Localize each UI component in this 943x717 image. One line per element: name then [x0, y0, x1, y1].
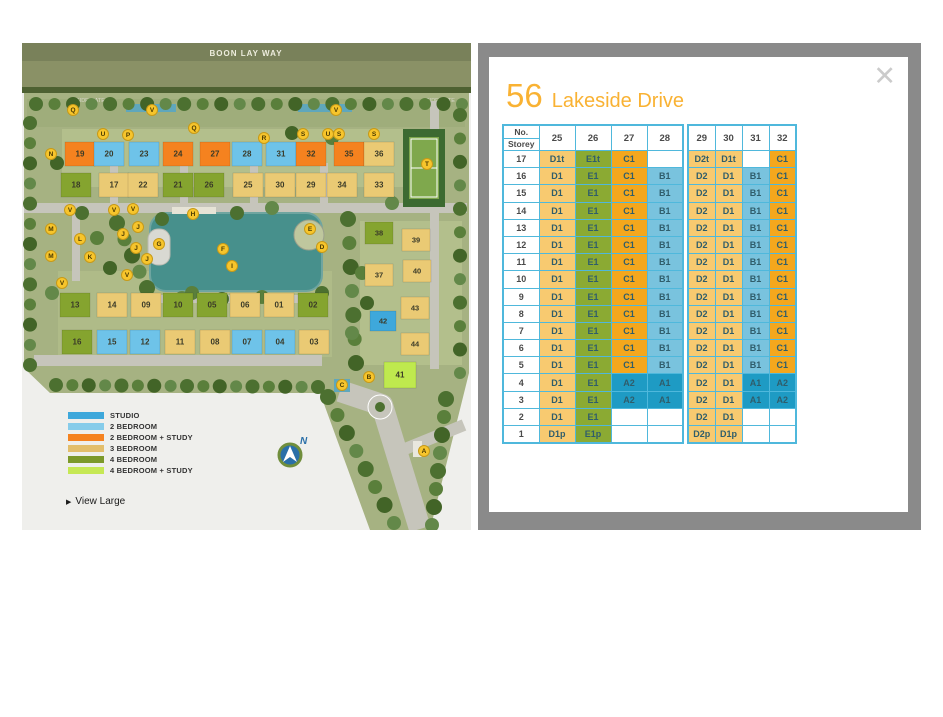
- marker-N: N: [46, 149, 57, 160]
- unit-cell-28-10[interactable]: B1: [647, 271, 683, 288]
- unit-cell-25-7[interactable]: D1: [539, 322, 575, 339]
- building-36[interactable]: 36: [364, 142, 394, 166]
- unit-cell-32-6[interactable]: C1: [769, 340, 796, 357]
- unit-cell-29-2[interactable]: D2: [688, 408, 715, 425]
- tree: [387, 516, 401, 530]
- unit-cell-26-5[interactable]: E1: [575, 357, 611, 374]
- tree: [115, 379, 129, 393]
- marker-V-letter: V: [125, 272, 130, 279]
- building-32[interactable]: 32: [296, 142, 326, 166]
- unit-cell-28-3[interactable]: A1: [647, 391, 683, 408]
- unit-cell-30-1[interactable]: D1p: [715, 426, 742, 444]
- unit-cell-32-11[interactable]: C1: [769, 254, 796, 271]
- tree: [23, 358, 37, 372]
- unit-cell-25-16[interactable]: D1: [539, 168, 575, 185]
- storey-label: 13: [503, 219, 539, 236]
- unit-cell-29-6[interactable]: D2: [688, 340, 715, 357]
- unit-cell-31-12[interactable]: B1: [742, 236, 769, 253]
- unit-cell-32-7[interactable]: C1: [769, 322, 796, 339]
- unit-cell-29-1[interactable]: D2p: [688, 426, 715, 444]
- unit-cell-27-7[interactable]: C1: [611, 322, 647, 339]
- unit-cell-32-14[interactable]: C1: [769, 202, 796, 219]
- unit-cell-26-6[interactable]: E1: [575, 340, 611, 357]
- unit-cell-26-13[interactable]: E1: [575, 219, 611, 236]
- marker-V: V: [128, 204, 139, 215]
- unit-cell-27-13[interactable]: C1: [611, 219, 647, 236]
- storey-label: 10: [503, 271, 539, 288]
- unit-cell-30-11[interactable]: D1: [715, 254, 742, 271]
- unit-cell-28-14[interactable]: B1: [647, 202, 683, 219]
- unit-cell-29-13[interactable]: D2: [688, 219, 715, 236]
- building-12[interactable]: 12: [130, 330, 160, 354]
- legend-label: 2 BEDROOM + STUDY: [110, 433, 193, 442]
- unit-cell-27-4[interactable]: A2: [611, 374, 647, 391]
- unit-cell-27-9[interactable]: C1: [611, 288, 647, 305]
- unit-cell-30-15[interactable]: D1: [715, 185, 742, 202]
- unit-cell-26-3[interactable]: E1: [575, 391, 611, 408]
- unit-cell-31-5[interactable]: B1: [742, 357, 769, 374]
- unit-cell-28-9[interactable]: B1: [647, 288, 683, 305]
- tree: [180, 379, 194, 393]
- tree: [29, 97, 43, 111]
- building-04[interactable]: 04: [265, 330, 295, 354]
- unit-cell-27-12[interactable]: C1: [611, 236, 647, 253]
- storey-row-9: D2D1B1C1: [688, 288, 796, 305]
- marker-A-letter: A: [422, 448, 427, 455]
- unit-cell-26-8[interactable]: E1: [575, 305, 611, 322]
- unit-cell-30-4[interactable]: D1: [715, 374, 742, 391]
- legend-label: 4 BEDROOM + STUDY: [110, 466, 193, 475]
- unit-cell-30-17[interactable]: D1t: [715, 151, 742, 168]
- storey-row-8: D2D1B1C1: [688, 305, 796, 322]
- storey-row-11: D2D1B1C1: [688, 254, 796, 271]
- unit-cell-25-11[interactable]: D1: [539, 254, 575, 271]
- building-15-number: 15: [108, 338, 117, 347]
- empty-cell: [647, 426, 683, 444]
- tree: [155, 212, 169, 226]
- column-header-26: 26: [575, 125, 611, 151]
- unit-cell-32-4[interactable]: A2: [769, 374, 796, 391]
- legend-item-3: 2 BEDROOM + STUDY: [68, 432, 193, 443]
- tree: [342, 236, 356, 250]
- marker-S-letter: S: [337, 131, 342, 138]
- tree: [133, 265, 147, 279]
- marker-P: P: [123, 130, 134, 141]
- unit-cell-25-14[interactable]: D1: [539, 202, 575, 219]
- building-34[interactable]: 34: [327, 173, 357, 197]
- unit-cell-29-12[interactable]: D2: [688, 236, 715, 253]
- building-20[interactable]: 20: [94, 142, 124, 166]
- unit-cell-27-6[interactable]: C1: [611, 340, 647, 357]
- tree: [437, 410, 451, 424]
- tree: [132, 380, 144, 392]
- building-11[interactable]: 11: [165, 330, 195, 354]
- unit-cell-31-3[interactable]: A1: [742, 391, 769, 408]
- unit-cell-26-4[interactable]: E1: [575, 374, 611, 391]
- tree: [75, 206, 89, 220]
- building-40[interactable]: 40: [403, 260, 431, 282]
- marker-S: S: [298, 129, 309, 140]
- building-18[interactable]: 18: [61, 173, 91, 197]
- building-07[interactable]: 07: [232, 330, 262, 354]
- tree: [377, 497, 393, 513]
- legend-label: 3 BEDROOM: [110, 444, 157, 453]
- unit-cell-31-9[interactable]: B1: [742, 288, 769, 305]
- storey-label: 1: [503, 426, 539, 444]
- building-08[interactable]: 08: [200, 330, 230, 354]
- unit-cell-30-13[interactable]: D1: [715, 219, 742, 236]
- unit-cell-25-15[interactable]: D1: [539, 185, 575, 202]
- building-31-number: 31: [277, 150, 286, 159]
- tree: [197, 380, 209, 392]
- tree: [453, 343, 467, 357]
- unit-cell-31-4[interactable]: A1: [742, 374, 769, 391]
- unit-cell-27-15[interactable]: C1: [611, 185, 647, 202]
- building-25[interactable]: 25: [233, 173, 263, 197]
- building-23[interactable]: 23: [129, 142, 159, 166]
- unit-cell-31-16[interactable]: B1: [742, 168, 769, 185]
- unit-cell-27-10[interactable]: C1: [611, 271, 647, 288]
- unit-cell-26-12[interactable]: E1: [575, 236, 611, 253]
- marker-L: L: [75, 234, 86, 245]
- storey-row-2: 2D1E1: [503, 408, 683, 425]
- unit-cell-28-12[interactable]: B1: [647, 236, 683, 253]
- marker-M-letter: M: [48, 253, 53, 260]
- tree: [340, 211, 356, 227]
- tree: [433, 446, 447, 460]
- unit-cell-26-16[interactable]: E1: [575, 168, 611, 185]
- tree: [160, 98, 172, 110]
- marker-V: V: [109, 205, 120, 216]
- unit-cell-30-9[interactable]: D1: [715, 288, 742, 305]
- unit-cell-29-14[interactable]: D2: [688, 202, 715, 219]
- unit-cell-31-8[interactable]: B1: [742, 305, 769, 322]
- legend-swatch: [68, 467, 104, 475]
- unit-cell-31-13[interactable]: B1: [742, 219, 769, 236]
- building-38[interactable]: 38: [365, 222, 393, 244]
- unit-cell-29-11[interactable]: D2: [688, 254, 715, 271]
- unit-cell-28-13[interactable]: B1: [647, 219, 683, 236]
- building-44-number: 44: [411, 340, 420, 349]
- building-41[interactable]: 41: [384, 362, 416, 388]
- tree: [246, 380, 260, 394]
- marker-M-letter: M: [48, 226, 53, 233]
- unit-cell-32-17[interactable]: C1: [769, 151, 796, 168]
- unit-cell-26-7[interactable]: E1: [575, 322, 611, 339]
- unit-cell-29-10[interactable]: D2: [688, 271, 715, 288]
- tree: [278, 380, 292, 394]
- unit-cell-30-14[interactable]: D1: [715, 202, 742, 219]
- building-31[interactable]: 31: [266, 142, 296, 166]
- unit-cell-27-14[interactable]: C1: [611, 202, 647, 219]
- unit-cell-32-13[interactable]: C1: [769, 219, 796, 236]
- tree: [234, 98, 246, 110]
- column-header-25: 25: [539, 125, 575, 151]
- unit-cell-25-1[interactable]: D1p: [539, 426, 575, 444]
- stack-table-2: 29303132D2tD1tC1D2D1B1C1D2D1B1C1D2D1B1C1…: [687, 124, 797, 444]
- building-37[interactable]: 37: [365, 264, 393, 286]
- marker-U: U: [98, 129, 109, 140]
- empty-cell: [742, 151, 769, 168]
- tree: [123, 98, 135, 110]
- street-name: Lakeside Drive: [552, 90, 684, 113]
- empty-cell: [742, 408, 769, 425]
- tree: [45, 286, 59, 300]
- marker-G-letter: G: [156, 241, 161, 248]
- building-42[interactable]: 42: [370, 311, 396, 331]
- tree: [147, 379, 161, 393]
- tree: [345, 326, 359, 340]
- marker-U: U: [323, 129, 334, 140]
- unit-cell-29-15[interactable]: D2: [688, 185, 715, 202]
- legend-item-6: 4 BEDROOM + STUDY: [68, 465, 193, 476]
- marker-D-letter: D: [320, 244, 325, 251]
- storey-label: 16: [503, 168, 539, 185]
- building-26[interactable]: 26: [194, 173, 224, 197]
- unit-cell-29-16[interactable]: D2: [688, 168, 715, 185]
- unit-cell-32-9[interactable]: C1: [769, 288, 796, 305]
- unit-cell-29-5[interactable]: D2: [688, 357, 715, 374]
- building-06[interactable]: 06: [230, 293, 260, 317]
- building-44[interactable]: 44: [401, 333, 429, 355]
- building-33[interactable]: 33: [364, 173, 394, 197]
- marker-V: V: [122, 270, 133, 281]
- unit-cell-30-6[interactable]: D1: [715, 340, 742, 357]
- building-06-number: 06: [241, 301, 250, 310]
- unit-cell-27-3[interactable]: A2: [611, 391, 647, 408]
- building-05[interactable]: 05: [197, 293, 227, 317]
- building-39[interactable]: 39: [402, 229, 430, 251]
- block-number: 56: [506, 77, 543, 115]
- tree: [358, 461, 374, 477]
- building-09[interactable]: 09: [131, 293, 161, 317]
- legend-swatch: [68, 412, 104, 420]
- unit-cell-28-15[interactable]: B1: [647, 185, 683, 202]
- storey-row-14: 14D1E1C1B1: [503, 202, 683, 219]
- tree: [345, 307, 361, 323]
- unit-cell-32-3[interactable]: A2: [769, 391, 796, 408]
- storey-label: 14: [503, 202, 539, 219]
- building-19-number: 19: [76, 150, 85, 159]
- storey-row-11: 11D1E1C1B1: [503, 254, 683, 271]
- building-03-number: 03: [310, 338, 319, 347]
- unit-cell-31-14[interactable]: B1: [742, 202, 769, 219]
- unit-cell-25-3[interactable]: D1: [539, 391, 575, 408]
- view-large-label: View Large: [75, 496, 125, 507]
- marker-P-letter: P: [126, 132, 131, 139]
- building-43[interactable]: 43: [401, 297, 429, 319]
- building-43-number: 43: [411, 304, 419, 313]
- unit-cell-31-6[interactable]: B1: [742, 340, 769, 357]
- tree: [285, 126, 299, 140]
- building-10-number: 10: [174, 301, 183, 310]
- unit-cell-30-12[interactable]: D1: [715, 236, 742, 253]
- building-14-number: 14: [108, 301, 117, 310]
- building-24[interactable]: 24: [163, 142, 193, 166]
- building-36-number: 36: [375, 150, 384, 159]
- storey-label: 5: [503, 357, 539, 374]
- unit-cell-25-9[interactable]: D1: [539, 288, 575, 305]
- unit-type-legend: STUDIO2 BEDROOM2 BEDROOM + STUDY3 BEDROO…: [68, 410, 193, 476]
- building-14[interactable]: 14: [97, 293, 127, 317]
- tree: [86, 98, 98, 110]
- unit-cell-25-10[interactable]: D1: [539, 271, 575, 288]
- building-35[interactable]: 35: [334, 142, 364, 166]
- building-27[interactable]: 27: [200, 142, 230, 166]
- unit-cell-30-16[interactable]: D1: [715, 168, 742, 185]
- building-16[interactable]: 16: [62, 330, 92, 354]
- unit-cell-25-2[interactable]: D1: [539, 408, 575, 425]
- unit-cell-25-6[interactable]: D1: [539, 340, 575, 357]
- column-header-29: 29: [688, 125, 715, 151]
- unit-cell-30-7[interactable]: D1: [715, 322, 742, 339]
- unit-cell-25-4[interactable]: D1: [539, 374, 575, 391]
- unit-stack-panel: ✕ 56 Lakeside Drive No.Storey2526272817D…: [478, 43, 921, 530]
- legend-item-5: 4 BEDROOM: [68, 454, 193, 465]
- building-03[interactable]: 03: [299, 330, 329, 354]
- unit-cell-31-10[interactable]: B1: [742, 271, 769, 288]
- building-40-number: 40: [413, 267, 421, 276]
- tree: [429, 482, 443, 496]
- tree: [24, 339, 36, 351]
- building-15[interactable]: 15: [97, 330, 127, 354]
- unit-cell-25-13[interactable]: D1: [539, 219, 575, 236]
- marker-S: S: [334, 129, 345, 140]
- marker-F: F: [218, 244, 229, 255]
- storey-row-4: 4D1E1A2A1: [503, 374, 683, 391]
- tree: [453, 155, 467, 169]
- unit-cell-28-16[interactable]: B1: [647, 168, 683, 185]
- unit-cell-32-5[interactable]: C1: [769, 357, 796, 374]
- unit-cell-26-11[interactable]: E1: [575, 254, 611, 271]
- unit-cell-25-12[interactable]: D1: [539, 236, 575, 253]
- building-17[interactable]: 17: [99, 173, 129, 197]
- tree: [308, 98, 320, 110]
- hedge: [22, 87, 471, 93]
- unit-cell-31-7[interactable]: B1: [742, 322, 769, 339]
- unit-cell-26-10[interactable]: E1: [575, 271, 611, 288]
- building-22[interactable]: 22: [128, 173, 158, 197]
- tree: [23, 277, 37, 291]
- unit-cell-29-8[interactable]: D2: [688, 305, 715, 322]
- unit-cell-31-15[interactable]: B1: [742, 185, 769, 202]
- column-header-32: 32: [769, 125, 796, 151]
- unit-cell-28-5[interactable]: B1: [647, 357, 683, 374]
- unit-cell-30-2[interactable]: D1: [715, 408, 742, 425]
- unit-cell-29-7[interactable]: D2: [688, 322, 715, 339]
- unit-cell-29-3[interactable]: D2: [688, 391, 715, 408]
- marker-J: J: [131, 243, 142, 254]
- unit-cell-26-1[interactable]: E1p: [575, 426, 611, 444]
- storey-row-6: D2D1B1C1: [688, 340, 796, 357]
- unit-cell-28-6[interactable]: B1: [647, 340, 683, 357]
- building-39-number: 39: [412, 236, 420, 245]
- building-02[interactable]: 02: [298, 293, 328, 317]
- unit-cell-28-4[interactable]: A1: [647, 374, 683, 391]
- building-29[interactable]: 29: [296, 173, 326, 197]
- storey-row-15: 15D1E1C1B1: [503, 185, 683, 202]
- building-21[interactable]: 21: [163, 173, 193, 197]
- unit-cell-27-16[interactable]: C1: [611, 168, 647, 185]
- building-10[interactable]: 10: [163, 293, 193, 317]
- building-18-number: 18: [72, 181, 81, 190]
- building-19[interactable]: 19: [65, 142, 95, 166]
- tree: [271, 98, 283, 110]
- building-13[interactable]: 13: [60, 293, 90, 317]
- close-icon[interactable]: ✕: [873, 63, 896, 90]
- unit-cell-27-11[interactable]: C1: [611, 254, 647, 271]
- unit-cell-30-8[interactable]: D1: [715, 305, 742, 322]
- unit-cell-27-8[interactable]: C1: [611, 305, 647, 322]
- unit-cell-25-17[interactable]: D1t: [539, 151, 575, 168]
- unit-cell-28-7[interactable]: B1: [647, 322, 683, 339]
- storey-row-3: D2D1A1A2: [688, 391, 796, 408]
- unit-cell-28-8[interactable]: B1: [647, 305, 683, 322]
- legend-item-2: 2 BEDROOM: [68, 421, 193, 432]
- tree: [177, 97, 191, 111]
- unit-cell-32-15[interactable]: C1: [769, 185, 796, 202]
- storey-row-16: 16D1E1C1B1: [503, 168, 683, 185]
- marker-V-letter: V: [68, 207, 73, 214]
- unit-cell-32-10[interactable]: C1: [769, 271, 796, 288]
- unit-cell-31-11[interactable]: B1: [742, 254, 769, 271]
- tree: [214, 97, 228, 111]
- unit-cell-30-10[interactable]: D1: [715, 271, 742, 288]
- unit-cell-25-5[interactable]: D1: [539, 357, 575, 374]
- compass-north-label: N: [300, 436, 308, 447]
- unit-cell-32-8[interactable]: C1: [769, 305, 796, 322]
- corner-header: No.Storey: [503, 125, 539, 151]
- unit-cell-32-16[interactable]: C1: [769, 168, 796, 185]
- tree: [66, 379, 78, 391]
- tree: [49, 98, 61, 110]
- building-33-number: 33: [375, 181, 384, 190]
- building-01-number: 01: [275, 301, 284, 310]
- building-01[interactable]: 01: [264, 293, 294, 317]
- unit-cell-30-5[interactable]: D1: [715, 357, 742, 374]
- marker-R-letter: R: [262, 135, 267, 142]
- unit-cell-29-9[interactable]: D2: [688, 288, 715, 305]
- unit-cell-25-8[interactable]: D1: [539, 305, 575, 322]
- unit-cell-28-11[interactable]: B1: [647, 254, 683, 271]
- unit-cell-26-2[interactable]: E1: [575, 408, 611, 425]
- unit-cell-32-12[interactable]: C1: [769, 236, 796, 253]
- marker-J: J: [133, 222, 144, 233]
- tree: [251, 97, 265, 111]
- unit-cell-27-17[interactable]: C1: [611, 151, 647, 168]
- unit-cell-29-17[interactable]: D2t: [688, 151, 715, 168]
- unit-cell-26-9[interactable]: E1: [575, 288, 611, 305]
- stack-table-1: No.Storey2526272817D1tE1tC116D1E1C1B115D…: [502, 124, 684, 444]
- unit-cell-30-3[interactable]: D1: [715, 391, 742, 408]
- marker-D: D: [317, 242, 328, 253]
- view-large-link[interactable]: ▶View Large: [66, 496, 125, 507]
- tree: [103, 261, 117, 275]
- internal-road: [72, 213, 80, 281]
- building-28[interactable]: 28: [232, 142, 262, 166]
- storey-row-17: D2tD1tC1: [688, 151, 796, 168]
- pool: [298, 104, 352, 112]
- tree: [345, 284, 359, 298]
- tree: [426, 499, 442, 515]
- storey-row-4: D2D1A1A2: [688, 374, 796, 391]
- unit-cell-26-15[interactable]: E1: [575, 185, 611, 202]
- building-30[interactable]: 30: [265, 173, 295, 197]
- unit-cell-26-17[interactable]: E1t: [575, 151, 611, 168]
- unit-cell-27-5[interactable]: C1: [611, 357, 647, 374]
- unit-cell-29-4[interactable]: D2: [688, 374, 715, 391]
- unit-cell-26-14[interactable]: E1: [575, 202, 611, 219]
